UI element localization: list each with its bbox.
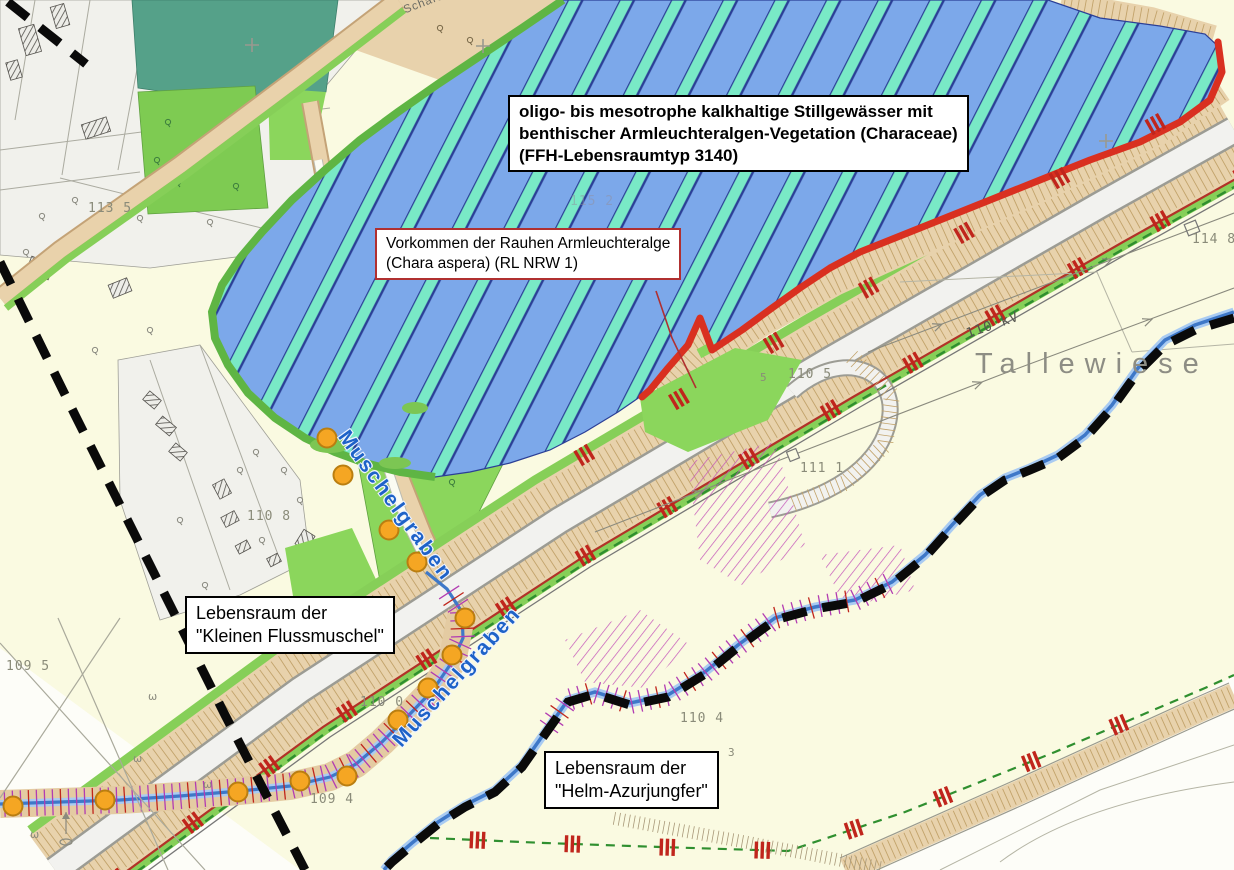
marsh-symbol: ω	[148, 690, 157, 703]
annotation-line: oligo- bis mesotrophe kalkhaltige Stillg…	[519, 101, 958, 123]
occurrence-dot	[456, 609, 475, 628]
annotation-box-stillgewaesser: oligo- bis mesotrophe kalkhaltige Stillg…	[508, 95, 969, 172]
habitat-tick	[60, 789, 61, 815]
red-comb-mark	[768, 842, 769, 859]
habitat-tick	[76, 788, 77, 814]
map-canvas[interactable]: ωωωω 113 5 110 8 109 5 110 0 109 4 110 4…	[0, 0, 1234, 870]
parcel-number: 110 4	[680, 711, 724, 726]
red-comb-mark	[483, 832, 484, 849]
habitat-tick	[36, 790, 37, 816]
red-comb-mark	[578, 836, 579, 853]
parcel-number: 109 4	[310, 792, 354, 807]
parcel-number: 115 2	[570, 194, 614, 209]
parcel-number: 110 8	[247, 509, 291, 524]
red-comb-mark	[667, 839, 668, 856]
annotation-box-azurjungfer: Lebensraum der "Helm-Azurjungfer"	[544, 751, 719, 809]
habitat-tick	[68, 789, 69, 815]
habitat-tick	[451, 636, 475, 637]
parcel-number: 110 5	[788, 367, 832, 382]
red-comb-mark	[661, 839, 662, 856]
marsh-symbol: ω	[203, 778, 212, 791]
habitat-tick	[84, 788, 85, 814]
parcel-number: 3	[728, 746, 736, 759]
parcel-number: 5	[760, 371, 768, 384]
marsh-symbol: ω	[133, 752, 142, 765]
habitat-tick	[116, 787, 117, 813]
annotation-line: "Helm-Azurjungfer"	[555, 780, 708, 803]
annotation-line: "Kleinen Flussmuschel"	[196, 625, 384, 648]
annotation-line: Lebensraum der	[196, 602, 384, 625]
annotation-line: (Chara aspera) (RL NRW 1)	[386, 254, 670, 274]
annotation-box-flussmuschel: Lebensraum der "Kleinen Flussmuschel"	[185, 596, 395, 654]
parcel-number: 109 5	[6, 659, 50, 674]
place-label-tallewiese: Tallewiese	[975, 348, 1209, 381]
occurrence-dot	[96, 791, 115, 810]
red-comb-mark	[756, 842, 757, 859]
annotation-box-vorkommen: Vorkommen der Rauhen Armleuchteralge (Ch…	[375, 228, 681, 280]
occurrence-dot	[334, 466, 353, 485]
parcel-number: 111 1	[800, 461, 844, 476]
occurrence-dot	[291, 772, 310, 791]
annotation-line: benthischer Armleuchteralgen-Vegetation …	[519, 123, 958, 145]
marsh-symbol: ω	[30, 828, 39, 841]
red-comb-mark	[566, 835, 567, 852]
annotation-line: (FFH-Lebensraumtyp 3140)	[519, 145, 958, 167]
red-comb-mark	[477, 832, 478, 849]
red-comb-mark	[572, 835, 573, 852]
lake-islet	[402, 402, 428, 414]
annotation-line: Vorkommen der Rauhen Armleuchteralge	[386, 234, 670, 254]
parcel-number: 113 5	[88, 201, 132, 216]
parcel-number: 110 0	[360, 695, 404, 710]
habitat-tick	[52, 789, 53, 815]
habitat-tick	[28, 790, 29, 816]
occurrence-dot	[4, 797, 23, 816]
red-comb-mark	[471, 831, 472, 848]
habitat-tick	[44, 790, 45, 816]
habitat-tick	[92, 788, 93, 814]
annotation-line: Lebensraum der	[555, 757, 708, 780]
red-comb-mark	[673, 839, 674, 856]
red-comb-mark	[762, 842, 763, 859]
parcel-number: 114 8	[1192, 232, 1234, 247]
lake-islet	[379, 457, 411, 469]
occurrence-dot	[338, 767, 357, 786]
occurrence-dot	[229, 783, 248, 802]
